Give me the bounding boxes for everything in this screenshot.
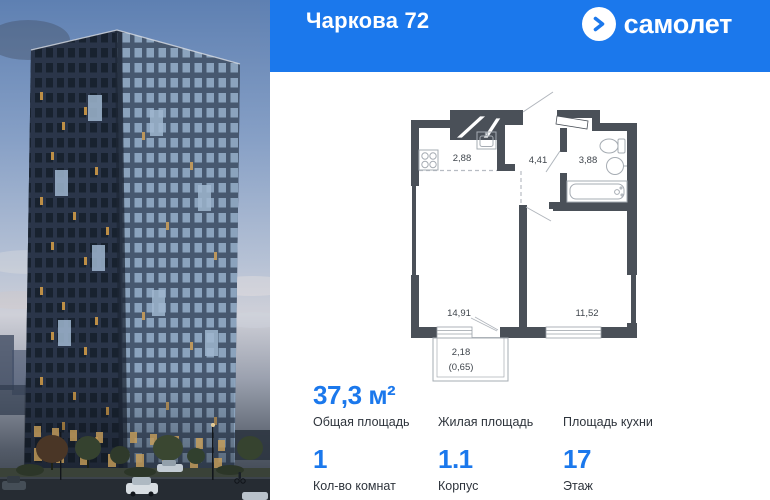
kitchen-area-value (563, 380, 713, 410)
samolet-arrow-icon (582, 7, 616, 41)
samolet-logo-text: самолет (624, 7, 732, 41)
project-title: Чаркова 72 (306, 8, 429, 34)
room-area-kitchen: 2,88 (453, 153, 472, 164)
floor-number-value: 17 (563, 444, 713, 474)
building-render (0, 0, 270, 500)
room-area-balcony: 2,18 (452, 347, 471, 358)
room-area-balcony-reduced: (0,65) (449, 362, 474, 373)
kitchen-area-label: Площадь кухни (563, 415, 713, 429)
room-area-bedroom: 11,52 (575, 308, 598, 319)
room-area-living: 14,91 (447, 308, 471, 319)
room-area-bathroom: 3,88 (579, 155, 598, 166)
floor-number-label: Этаж (563, 479, 713, 493)
listing-card: Чаркова 72 самолет (0, 0, 770, 500)
floor-number-cell: 17 Этаж (563, 444, 713, 493)
floor-plan: 2,88 4,41 3,88 14,91 11,52 2,18 (0,65) (405, 85, 645, 390)
building-photo (0, 0, 270, 500)
room-area-hallway: 4,41 (529, 155, 548, 166)
info-panel: Чаркова 72 самолет (270, 0, 770, 500)
kitchen-area-cell: Площадь кухни (563, 380, 713, 429)
header-bar: Чаркова 72 самолет (270, 0, 770, 72)
samolet-logo[interactable]: самолет (582, 7, 732, 41)
